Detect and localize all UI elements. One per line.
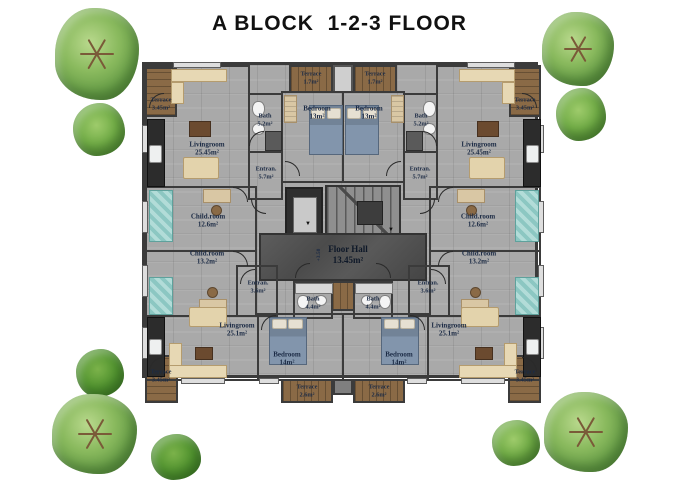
window bbox=[142, 265, 148, 297]
elevator bbox=[285, 187, 323, 235]
label-bedroom-tl: Bedroom13m² bbox=[303, 105, 330, 122]
sofa bbox=[502, 82, 515, 104]
label-entrance-bl: Entran.3.6m² bbox=[248, 279, 269, 294]
coffee-table bbox=[189, 121, 211, 137]
bush-icon bbox=[73, 103, 125, 156]
bush-icon bbox=[492, 420, 540, 466]
window bbox=[467, 62, 515, 68]
label-childroom-tl: Child.room12.6m² bbox=[191, 213, 225, 230]
label-entrance-br: Entran.3.6m² bbox=[418, 279, 439, 294]
label-bath-tl: Bath5.2m² bbox=[257, 112, 272, 127]
sofa bbox=[459, 69, 515, 82]
label-floor-hall: Floor Hall13.45m² bbox=[328, 244, 368, 266]
label-livingroom-bl: Livingroom25.1m² bbox=[219, 322, 254, 339]
bathtub bbox=[295, 283, 333, 294]
top-center-closet bbox=[333, 65, 353, 93]
kitchen-sink bbox=[526, 145, 539, 163]
wardrobe bbox=[284, 95, 297, 123]
label-terrace-side-tl: Terrace3.45m² bbox=[151, 96, 172, 111]
label-childroom-bl: Child.room13.2m² bbox=[190, 250, 224, 267]
label-bedroom-bl: Bedroom14m² bbox=[273, 351, 300, 368]
tree-icon bbox=[52, 394, 137, 474]
label-terrace-side-tr: Terrace3.45m² bbox=[515, 96, 536, 111]
chair bbox=[207, 287, 218, 298]
direction-marker-icon: ▼ bbox=[305, 221, 311, 227]
desk bbox=[203, 189, 231, 203]
label-childroom-tr: Child.room12.6m² bbox=[461, 213, 495, 230]
wardrobe bbox=[391, 95, 404, 123]
tree-icon bbox=[542, 12, 614, 86]
pillow bbox=[384, 319, 399, 329]
sofa bbox=[171, 82, 184, 104]
label-bedroom-br: Bedroom14m² bbox=[385, 351, 412, 368]
label-terrace-side-bl: Terrace3.45m² bbox=[151, 368, 172, 383]
label-terrace-top-l: Terrace1.7m² bbox=[301, 70, 322, 85]
label-bedroom-tr: Bedroom13m² bbox=[355, 105, 382, 122]
bottom-center-wall bbox=[333, 379, 353, 395]
label-livingroom-tr: Livingroom25.45m² bbox=[461, 141, 496, 158]
chair bbox=[470, 287, 481, 298]
label-terrace-bottom-l: Terrace2.6m² bbox=[297, 383, 318, 398]
kitchen-sink bbox=[526, 339, 539, 355]
label-childroom-br: Child.room13.2m² bbox=[462, 250, 496, 267]
window bbox=[461, 378, 505, 384]
elevator-door bbox=[293, 197, 317, 233]
child-bed bbox=[149, 277, 173, 315]
window bbox=[407, 378, 427, 384]
label-entrance-tl: Entran.5.7m² bbox=[256, 165, 277, 180]
toilet bbox=[379, 295, 391, 309]
label-entrance-tr: Entran.5.7m² bbox=[410, 165, 431, 180]
shower bbox=[406, 131, 423, 151]
sofa bbox=[459, 365, 517, 378]
shower bbox=[265, 131, 282, 151]
label-terrace-top-r: Terrace1.7m² bbox=[365, 70, 386, 85]
bush-icon bbox=[151, 434, 201, 480]
label-livingroom-tl: Livingroom25.45m² bbox=[189, 141, 224, 158]
building-outline: ▼ ▼ bbox=[142, 62, 538, 378]
sofa bbox=[171, 69, 227, 82]
coffee-table bbox=[475, 347, 493, 360]
kitchen-sink bbox=[149, 145, 162, 163]
coffee-table bbox=[477, 121, 499, 137]
bush-icon bbox=[556, 88, 606, 141]
floor-plan-page: { "title": "A BLOCK 1-2-3 FLOOR", "hall"… bbox=[0, 0, 679, 480]
dining-table bbox=[183, 157, 219, 179]
child-bed bbox=[515, 190, 539, 242]
dining-table bbox=[469, 157, 505, 179]
window bbox=[181, 378, 225, 384]
child-bed bbox=[149, 190, 173, 242]
kitchen-sink bbox=[149, 339, 162, 355]
label-livingroom-br: Livingroom25.1m² bbox=[431, 322, 466, 339]
bathtub bbox=[355, 283, 393, 294]
window bbox=[142, 201, 148, 233]
tree-icon bbox=[544, 392, 628, 472]
center-closet-wood bbox=[331, 281, 355, 311]
label-bath-br: Bath4.4m² bbox=[365, 295, 380, 310]
window bbox=[259, 378, 279, 384]
desk bbox=[457, 189, 485, 203]
pillow bbox=[288, 319, 303, 329]
child-bed bbox=[515, 277, 539, 315]
window bbox=[173, 62, 221, 68]
bush-icon bbox=[76, 349, 124, 397]
label-terrace-side-br: Terrace3.45m² bbox=[515, 368, 536, 383]
label-bath-bl: Bath4.4m² bbox=[305, 295, 320, 310]
coffee-table bbox=[195, 347, 213, 360]
dining-table bbox=[461, 307, 499, 327]
label-terrace-bottom-r: Terrace2.6m² bbox=[369, 383, 390, 398]
stair-landing bbox=[357, 201, 383, 225]
label-floor-level: +3.50 bbox=[316, 249, 322, 262]
tree-icon bbox=[55, 8, 139, 100]
label-bath-tr: Bath5.2m² bbox=[413, 112, 428, 127]
direction-marker-icon: ▼ bbox=[388, 227, 394, 233]
sofa bbox=[169, 365, 227, 378]
